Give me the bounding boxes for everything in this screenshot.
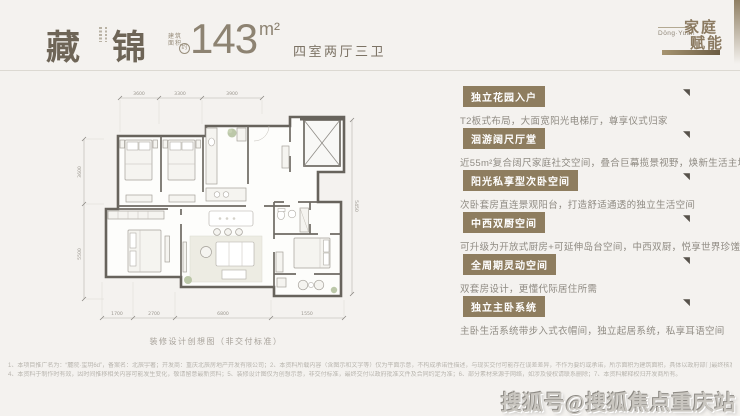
- plan-caption: 装修设计创想图（非交付标准）: [70, 336, 362, 347]
- feature-badge: 中西双厨空间: [463, 212, 545, 233]
- feature-desc: 次卧套房直连景观阳台，打造舒适通透的独立生活空间: [460, 197, 734, 211]
- feature-list: 独立花园入户 ◥ T2板式布局，大面宽阳光电梯厅，尊享仪式归家 洄游阔尺厅堂 ◥…: [456, 86, 734, 338]
- feature-badge: 阳光私享型次卧空间: [463, 170, 578, 191]
- feature-badge: 独立主卧系统: [463, 296, 545, 317]
- svg-text:5450: 5450: [353, 200, 359, 212]
- svg-text:2700: 2700: [148, 311, 160, 317]
- header-divider: [0, 70, 740, 71]
- svg-text:3300: 3300: [174, 91, 186, 97]
- feature-desc: T2板式布局，大面宽阳光电梯厅，尊享仪式归家: [460, 113, 734, 127]
- feature-item: 全周期灵动空间 ◥ 双套房设计，更懂代际居住所需: [456, 254, 734, 296]
- area-value: 143: [190, 15, 257, 63]
- corner-mark-icon: ◥: [683, 129, 690, 140]
- feature-item: 阳光私享型次卧空间 ◥ 次卧套房直连景观阳台，打造舒适通透的独立生活空间: [456, 170, 734, 212]
- approx-circle-icon: 约: [179, 43, 190, 54]
- corner-mark-icon: ◥: [683, 87, 690, 98]
- svg-text:3900: 3900: [226, 91, 238, 97]
- sohu-watermark: 搜狐号@搜狐焦点重庆站: [501, 387, 736, 416]
- floor-plan-drawing: 3600 3300 3900 3600 5500 5450 1700 2700 …: [70, 84, 362, 334]
- feature-desc: 可升级为开放式厨房+可延伸岛台空间，中西双厨，悦享世界珍馐: [460, 239, 734, 253]
- feature-badge: 洄游阔尺厅堂: [463, 128, 545, 149]
- disclaimer-line1: 1、本项目推广名为：“麓院·玺玥6d”，备案名：北辰宇著；开发商：重庆北辰房地产…: [8, 362, 732, 371]
- room-layout-label: 四室两厅三卫: [293, 41, 386, 60]
- area-unit: m²: [259, 19, 280, 40]
- corner-gradient-strip: [734, 0, 740, 64]
- feature-desc: 主卧生活系统带步入式衣帽间，独立起居系统，私享耳语空间: [460, 323, 734, 337]
- promo-page: 藏 锦 建筑 面积 约 143 m² 四室两厅三卫 Dōng·Yuán 家庭 赋…: [0, 0, 740, 416]
- corner-mark-icon: ◥: [683, 297, 690, 308]
- feature-desc: 双套房设计，更懂代际居住所需: [460, 281, 734, 295]
- feature-badge: 全周期灵动空间: [463, 254, 556, 275]
- page-title-char1: 藏: [46, 20, 80, 69]
- page-title-char2: 锦: [112, 20, 146, 69]
- corner-mark-icon: ◥: [683, 255, 690, 266]
- legal-disclaimer: 1、本项目推广名为：“麓院·玺玥6d”，备案名：北辰宇著；开发商：重庆北辰房地产…: [8, 362, 732, 379]
- title-seal-mark: [99, 27, 108, 42]
- svg-text:1550: 1550: [301, 311, 313, 317]
- feature-item: 独立主卧系统 ◥ 主卧生活系统带步入式衣帽间，独立起居系统，私享耳语空间: [456, 296, 734, 338]
- feature-item: 独立花园入户 ◥ T2板式布局，大面宽阳光电梯厅，尊享仪式归家: [456, 86, 734, 128]
- svg-text:3600: 3600: [77, 166, 83, 178]
- feature-item: 中西双厨空间 ◥ 可升级为开放式厨房+可延伸岛台空间，中西双厨，悦享世界珍馐: [456, 212, 734, 254]
- feature-desc: 近55m²复合阔尺家庭社交空间，叠合巨幕揽景视野，焕新生活主场: [460, 155, 734, 169]
- svg-text:1700: 1700: [111, 311, 123, 317]
- svg-text:5500: 5500: [77, 248, 83, 260]
- svg-text:6800: 6800: [217, 311, 229, 317]
- corner-mark-icon: ◥: [683, 171, 690, 182]
- feature-badge: 独立花园入户: [463, 86, 545, 107]
- disclaimer-line2: 4、本资料于制作时有效，因时间推移相关内容可能发生变化，敬请留意最新资料；5、装…: [8, 371, 732, 380]
- brand-logo-bar: [662, 50, 720, 55]
- feature-item: 洄游阔尺厅堂 ◥ 近55m²复合阔尺家庭社交空间，叠合巨幕揽景视野，焕新生活主场: [456, 128, 734, 170]
- corner-mark-icon: ◥: [683, 213, 690, 224]
- floor-plan: 3600 3300 3900 3600 5500 5450 1700 2700 …: [70, 84, 362, 334]
- svg-text:3600: 3600: [133, 91, 145, 97]
